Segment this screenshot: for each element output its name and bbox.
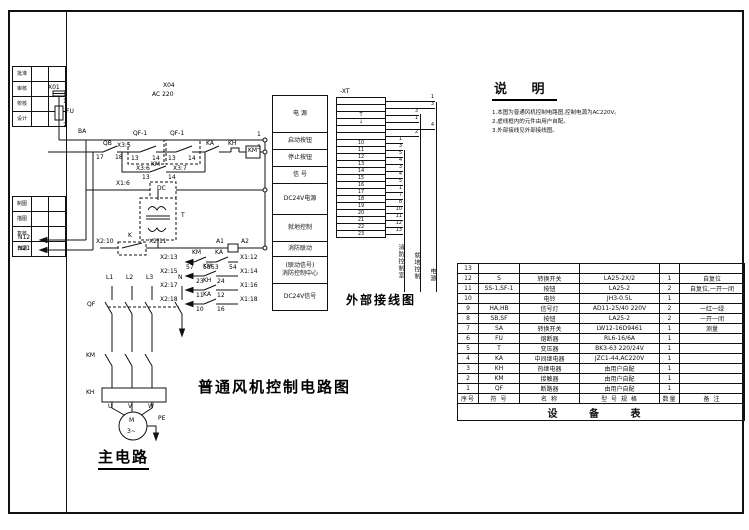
- table-cell: 7: [458, 324, 479, 334]
- wire-number: 1: [399, 186, 402, 191]
- wire-number: 5: [399, 179, 402, 184]
- wire-number: 13: [396, 228, 402, 233]
- table-cell: 5: [458, 344, 479, 354]
- control-label: X3:5: [117, 143, 131, 149]
- wire_tags-label: N12: [18, 235, 30, 241]
- table-cell: QF: [479, 384, 520, 394]
- control-label: KM: [151, 162, 160, 168]
- feedback-label: X2:13: [160, 255, 178, 261]
- table-cell: 9: [458, 304, 479, 314]
- table-cell: 接触器: [520, 374, 580, 384]
- table-row: 2KM接触器由用户自配1: [458, 374, 745, 384]
- table-cell: 1: [660, 364, 680, 374]
- table-footer-title: 设 备 表: [458, 404, 745, 421]
- table-cell: 一红一绿: [680, 304, 745, 314]
- wire-number: 10: [396, 207, 402, 212]
- external-box: 电 源: [272, 95, 328, 133]
- notes-section: 说 明 1.本图为普通风机控制电路图,控制电源为AC220V。2.虚线框内的元件…: [492, 78, 722, 136]
- table-cell: 1: [458, 384, 479, 394]
- feedback-label: 57: [186, 265, 194, 271]
- table-header-cell: 型 号 规 格: [580, 394, 660, 404]
- main-circuit-title: 主电路: [98, 446, 149, 470]
- equipment-table: 1312S转换开关LA25-2X/21自复位11SS-1,SF-1按钮LA25-…: [457, 263, 745, 421]
- control-label: 1: [63, 99, 67, 105]
- table-row: 5T变压器BK3-63 220/24V1: [458, 344, 745, 354]
- feedback-label: KH: [203, 278, 211, 284]
- control-label: 13: [142, 175, 150, 181]
- main_circuit-label: M: [129, 418, 134, 424]
- terminal-number: 23: [337, 231, 385, 237]
- table-cell: 1: [660, 334, 680, 344]
- wire-number: 3: [415, 109, 418, 114]
- note-line: 2.虚线框内的元件由用户自配。: [492, 118, 722, 127]
- terminal-row: 2313: [336, 230, 386, 238]
- external-box: (联动信号)消防控制中心: [272, 256, 328, 284]
- main_circuit-label: U: [108, 404, 112, 410]
- control-label: X2:11: [149, 239, 167, 245]
- external-box: 停止按钮: [272, 149, 328, 167]
- table-cell: [680, 264, 745, 274]
- control-label: KH: [228, 141, 236, 147]
- external-box: 就地控制: [272, 214, 328, 242]
- control-label: X1:6: [116, 181, 130, 187]
- table-cell: [680, 384, 745, 394]
- table-cell: LA25-2: [580, 284, 660, 294]
- table-cell: [479, 264, 520, 274]
- wire-number: 12: [396, 221, 402, 226]
- external-box-label: 启动按钮: [288, 137, 312, 145]
- table-cell: 自复位,一开一闭: [680, 284, 745, 294]
- control-label: X04: [163, 83, 175, 89]
- table-row: 8SB,SF按钮LA25-22一开一闭: [458, 314, 745, 324]
- wire-number: 2: [415, 130, 418, 135]
- feedback-label: KA: [215, 250, 223, 256]
- control-label: 13: [131, 156, 139, 162]
- control-label: A1: [216, 239, 224, 245]
- table-cell: LA25-2X/2: [580, 274, 660, 284]
- wire_tags-label: N21: [18, 246, 30, 252]
- table-cell: 12: [458, 274, 479, 284]
- table-cell: JH3-0.5L: [580, 294, 660, 304]
- table-cell: AD11-25/40 220V: [580, 304, 660, 314]
- control-label: QF-1: [170, 131, 184, 137]
- external-box-label: 停止按钮: [288, 154, 312, 162]
- control-label: KA: [206, 141, 214, 147]
- table-cell: [520, 264, 580, 274]
- table-cell: 11: [458, 284, 479, 294]
- control-label: FU: [66, 109, 74, 115]
- terminal-wire-stub: 2: [385, 136, 419, 137]
- table-cell: 转换开关: [520, 324, 580, 334]
- control-label: 14: [188, 156, 196, 162]
- table-cell: 1: [660, 324, 680, 334]
- table-header-cell: 数量: [660, 394, 680, 404]
- table-cell: LA25-2: [580, 314, 660, 324]
- control-label: K: [128, 233, 132, 239]
- notes-lines: 1.本图为普通风机控制电路图,控制电源为AC220V。2.虚线框内的元件由用户自…: [492, 109, 722, 136]
- control-label: X3:7: [173, 166, 187, 172]
- feedback-label: X1:14: [240, 269, 258, 275]
- control-label: BA: [78, 129, 86, 135]
- main_circuit-label: N: [178, 275, 183, 281]
- external-box-column: 电 源启动按钮停止按钮信 号DC24V电源就地控制消防联动(联动信号)消防控制中…: [272, 96, 328, 311]
- table-cell: 4: [458, 354, 479, 364]
- feedback-label: X1:12: [240, 255, 258, 261]
- wire-number: 3: [399, 165, 402, 170]
- terminal-wire-stub: 1: [385, 101, 435, 102]
- table-cell: FU: [479, 334, 520, 344]
- external-box-label: 消防联动: [288, 245, 312, 253]
- external-box-label: 电 源: [293, 110, 307, 118]
- table-cell: 10: [458, 294, 479, 304]
- control-label: 14: [168, 175, 176, 181]
- table-footer-row: 设 备 表: [458, 404, 745, 421]
- wire-number: 3: [431, 102, 434, 107]
- table-header-cell: 名 称: [520, 394, 580, 404]
- table-cell: [660, 264, 680, 274]
- feedback-label: X1:16: [240, 283, 258, 289]
- wire-number: 1: [431, 95, 434, 100]
- table-cell: 1: [660, 374, 680, 384]
- table-row: 4KA中间继电器JZC1-44,AC220V1: [458, 354, 745, 364]
- table-cell: LW12-16D9461: [580, 324, 660, 334]
- feedback-label: X1:18: [240, 297, 258, 303]
- table-cell: [680, 344, 745, 354]
- terminal-wire-stub: 1: [385, 122, 419, 123]
- table-row: 12S转换开关LA25-2X/21自复位: [458, 274, 745, 284]
- wire-number: 4: [431, 123, 434, 128]
- table-cell: 由用户自配: [580, 374, 660, 384]
- external-box-label: 信 号: [293, 171, 307, 179]
- wire-number: 4: [399, 172, 402, 177]
- table-cell: [680, 294, 745, 304]
- table-cell: KA: [479, 354, 520, 364]
- control-label: X2:10: [96, 239, 114, 245]
- bus-label-1: 消防控制室: [396, 244, 405, 279]
- control-label: T: [181, 213, 185, 219]
- table-cell: 2: [458, 374, 479, 384]
- terminal-wire-stub: 4: [385, 129, 435, 130]
- table-cell: 2: [660, 284, 680, 294]
- main_circuit-label: L1: [106, 275, 113, 281]
- table-cell: 断路器: [520, 384, 580, 394]
- table-cell: [680, 364, 745, 374]
- notes-title: 说 明: [492, 78, 557, 101]
- table-cell: JZC1-44,AC220V: [580, 354, 660, 364]
- main_circuit-label: KH: [86, 390, 94, 396]
- table-cell: 按钮: [520, 284, 580, 294]
- table-cell: [479, 294, 520, 304]
- feedback-label: 24: [217, 279, 225, 285]
- feedback-label: KM: [192, 250, 201, 256]
- table-cell: 中间继电器: [520, 354, 580, 364]
- table-cell: KM: [479, 374, 520, 384]
- external-box: DC24V信号: [272, 283, 328, 311]
- feedback-label: X2:15: [160, 269, 178, 275]
- table-cell: 由用户自配: [580, 384, 660, 394]
- wiring-diagram-title: 外部接线图: [346, 291, 416, 308]
- equipment-table-body: 1312S转换开关LA25-2X/21自复位11SS-1,SF-1按钮LA25-…: [458, 264, 745, 421]
- table-cell: 8: [458, 314, 479, 324]
- terminal-wire-stub: 3: [385, 108, 435, 109]
- control-label: AC 220: [152, 92, 174, 98]
- equipment-table-grid: 1312S转换开关LA25-2X/21自复位11SS-1,SF-1按钮LA25-…: [457, 263, 745, 421]
- external-box: 消防联动: [272, 241, 328, 257]
- main_circuit-label: 3~: [127, 429, 136, 435]
- table-cell: BK3-63 220/24V: [580, 344, 660, 354]
- external-box-label: (联动信号): [286, 262, 315, 270]
- feedback-label: 53: [211, 265, 219, 271]
- external-box: 启动按钮: [272, 132, 328, 150]
- table-cell: 信号灯: [520, 304, 580, 314]
- wire-number: 7: [399, 193, 402, 198]
- external-box-label: 就地控制: [288, 224, 312, 232]
- table-row: 7SA转换开关LW12-16D94611测量: [458, 324, 745, 334]
- table-cell: 2: [660, 314, 680, 324]
- table-row: 1QF断路器由用户自配1: [458, 384, 745, 394]
- main_circuit-label: L3: [146, 275, 153, 281]
- table-cell: 1: [660, 354, 680, 364]
- table-cell: [680, 334, 745, 344]
- main_circuit-label: PE: [158, 416, 165, 422]
- wire-number: 1: [415, 116, 418, 121]
- main_circuit-label: L2: [126, 275, 133, 281]
- control-label: 2: [63, 123, 67, 129]
- table-row: 6FU熔断器RL6-16/6A1: [458, 334, 745, 344]
- table-row: 9HA,HB信号灯AD11-25/40 220V2一红一绿: [458, 304, 745, 314]
- table-cell: 热继电器: [520, 364, 580, 374]
- terminal-strip-name: -XT: [340, 89, 350, 95]
- table-cell: SA: [479, 324, 520, 334]
- bus-line-3: [436, 102, 437, 292]
- feedback-label: 16: [217, 307, 225, 313]
- table-cell: 转换开关: [520, 274, 580, 284]
- terminal-strip: 13T3↓14210111312513414315416517118719820…: [336, 98, 386, 238]
- table-header-cell: 符 号: [479, 394, 520, 404]
- main_circuit-label: W: [148, 404, 154, 410]
- table-cell: T: [479, 344, 520, 354]
- feedback-label: 10: [196, 307, 204, 313]
- note-line: 1.本图为普通风机控制电路图,控制电源为AC220V。: [492, 109, 722, 118]
- table-cell: SS-1,SF-1: [479, 284, 520, 294]
- external-box: 信 号: [272, 166, 328, 184]
- bus-label-2: 就地控制: [412, 252, 421, 280]
- wire-number: 3: [399, 144, 402, 149]
- feedback-label: KM: [203, 264, 212, 270]
- control-label: 18: [115, 155, 123, 161]
- note-line: 3.外部接线见外部接线图。: [492, 127, 722, 136]
- bus-label-3: 电源: [428, 268, 437, 282]
- wire-number: 5: [399, 151, 402, 156]
- table-cell: 2: [660, 304, 680, 314]
- main-title: 普通风机控制电路图: [198, 376, 351, 397]
- table-header-cell: 备 注: [680, 394, 745, 404]
- control-label: DC: [157, 186, 166, 192]
- table-cell: KH: [479, 364, 520, 374]
- table-cell: 1: [660, 384, 680, 394]
- wire-number: 4: [399, 158, 402, 163]
- table-row: 11SS-1,SF-1按钮LA25-22自复位,一开一闭: [458, 284, 745, 294]
- wire-number: 1: [399, 137, 402, 142]
- table-cell: 1: [660, 294, 680, 304]
- control-label: 3: [257, 145, 261, 151]
- feedback-label: 12: [217, 293, 225, 299]
- external-box-label: DC24V电源: [284, 195, 317, 203]
- table-cell: SB,SF: [479, 314, 520, 324]
- table-row: 10电铃JH3-0.5L1: [458, 294, 745, 304]
- table-cell: 变压器: [520, 344, 580, 354]
- table-cell: 由用户自配: [580, 364, 660, 374]
- wire-number: 8: [399, 200, 402, 205]
- feedback-label: 54: [229, 265, 237, 271]
- control-label: QB: [103, 141, 112, 147]
- table-cell: 电铃: [520, 294, 580, 304]
- control-label: X01: [48, 85, 60, 91]
- control-label: 1: [257, 132, 261, 138]
- main_circuit-label: V: [128, 404, 132, 410]
- control-label: X3:6: [136, 166, 150, 172]
- table-cell: RL6-16/6A: [580, 334, 660, 344]
- table-cell: S: [479, 274, 520, 284]
- table-header-cell: 序号: [458, 394, 479, 404]
- main_circuit-label: QF: [87, 302, 95, 308]
- table-cell: 1: [660, 274, 680, 284]
- control-label: A2: [241, 239, 249, 245]
- control-label: 13: [168, 156, 176, 162]
- main_circuit-label: KM: [86, 353, 95, 359]
- wire-number: 11: [396, 214, 402, 219]
- table-cell: 自复位: [680, 274, 745, 284]
- external-box-label: DC24V信号: [284, 293, 317, 301]
- table-row: 3KH热继电器由用户自配1: [458, 364, 745, 374]
- control-label: 17: [96, 155, 104, 161]
- drawing-sheet: 批准审核校核设计 制图描图复核日期: [0, 0, 749, 530]
- table-cell: 测量: [680, 324, 745, 334]
- table-cell: 1: [660, 344, 680, 354]
- table-cell: HA,HB: [479, 304, 520, 314]
- table-cell: 6: [458, 334, 479, 344]
- table-cell: 13: [458, 264, 479, 274]
- table-cell: [580, 264, 660, 274]
- feedback-label: KA: [203, 292, 211, 298]
- table-cell: 一开一闭: [680, 314, 745, 324]
- terminal-wire-stub: 13: [385, 234, 403, 235]
- external-box: DC24V电源: [272, 183, 328, 215]
- feedback-label: X2:18: [160, 297, 178, 303]
- table-row: 13: [458, 264, 745, 274]
- table-cell: 按钮: [520, 314, 580, 324]
- control-label: KM: [248, 148, 257, 154]
- table-cell: 熔断器: [520, 334, 580, 344]
- table-header-row: 序号符 号名 称型 号 规 格数量备 注: [458, 394, 745, 404]
- table-cell: [680, 374, 745, 384]
- table-cell: 3: [458, 364, 479, 374]
- feedback-label: X2:17: [160, 283, 178, 289]
- control-label: QF-1: [133, 131, 147, 137]
- table-cell: [680, 354, 745, 364]
- external-box-label: 消防控制中心: [282, 270, 318, 278]
